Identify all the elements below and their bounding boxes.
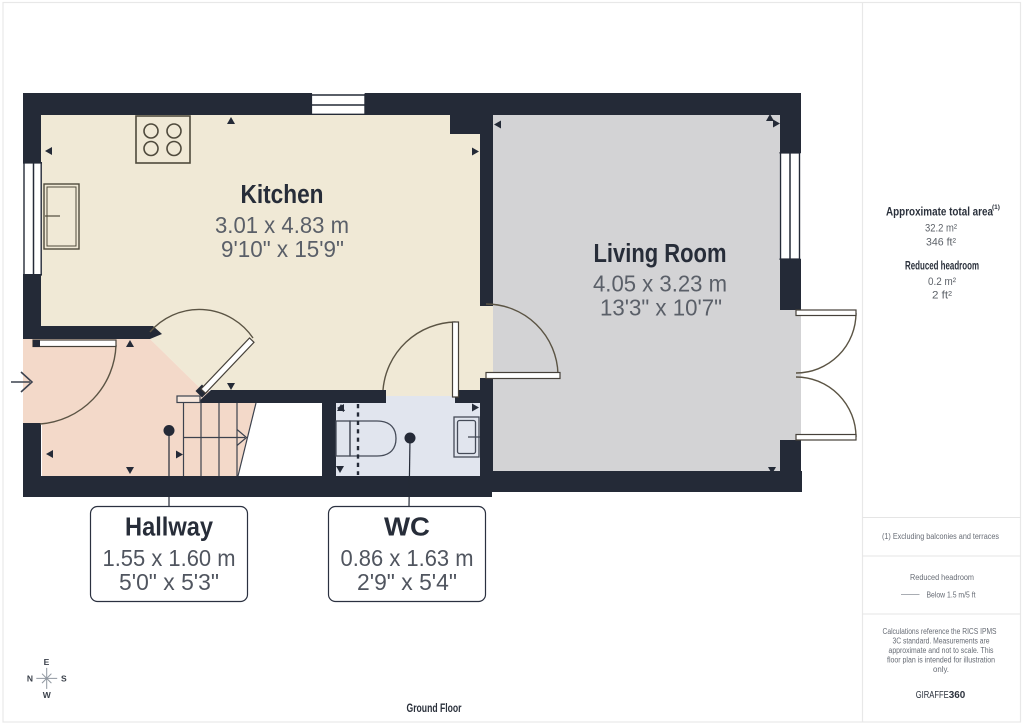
svg-text:Ground Floor: Ground Floor [407,703,462,715]
svg-text:2'9" x 5'4": 2'9" x 5'4" [357,569,457,595]
svg-text:N: N [27,673,33,683]
svg-text:GIRAFFE360: GIRAFFE360 [916,689,966,701]
svg-text:Calculations reference the RIC: Calculations reference the RICS IPMS [883,627,997,636]
svg-text:Living Room: Living Room [594,240,727,268]
svg-text:W: W [43,690,52,700]
svg-text:floor plan is intended for ill: floor plan is intended for illustration [887,656,995,665]
svg-text:9'10" x 15'9": 9'10" x 15'9" [221,236,344,262]
svg-text:0.86 x 1.63 m: 0.86 x 1.63 m [341,545,474,571]
svg-text:WC: WC [384,514,430,542]
svg-text:2 ft²: 2 ft² [932,290,952,302]
svg-text:3C standard. Measurements are: 3C standard. Measurements are [893,637,990,646]
svg-text:Reduced headroom: Reduced headroom [910,573,974,582]
svg-text:4.05 x 3.23 m: 4.05 x 3.23 m [593,271,727,297]
svg-text:1.55 x 1.60 m: 1.55 x 1.60 m [103,545,236,571]
svg-text:Hallway: Hallway [125,514,214,542]
svg-text:32.2 m²: 32.2 m² [925,223,957,235]
svg-text:Kitchen: Kitchen [241,181,324,209]
svg-text:only.: only. [933,665,949,674]
svg-text:S: S [61,673,67,683]
svg-text:Approximate total area: Approximate total area [886,205,993,219]
svg-text:Below 1.5 m/5 ft: Below 1.5 m/5 ft [927,591,977,600]
svg-text:5'0" x 5'3": 5'0" x 5'3" [119,569,219,595]
svg-text:(1) Excluding balconies and te: (1) Excluding balconies and terraces [882,532,999,541]
svg-text:0.2 m²: 0.2 m² [928,276,956,288]
svg-text:346 ft²: 346 ft² [926,237,956,249]
svg-text:13'3" x 10'7": 13'3" x 10'7" [600,295,722,321]
svg-text:3.01 x 4.83 m: 3.01 x 4.83 m [215,212,349,238]
svg-text:(1): (1) [992,204,1000,211]
svg-text:E: E [44,657,50,667]
svg-text:Reduced headroom: Reduced headroom [905,261,979,273]
svg-text:approximate and not to scale.: approximate and not to scale. This [889,646,994,655]
